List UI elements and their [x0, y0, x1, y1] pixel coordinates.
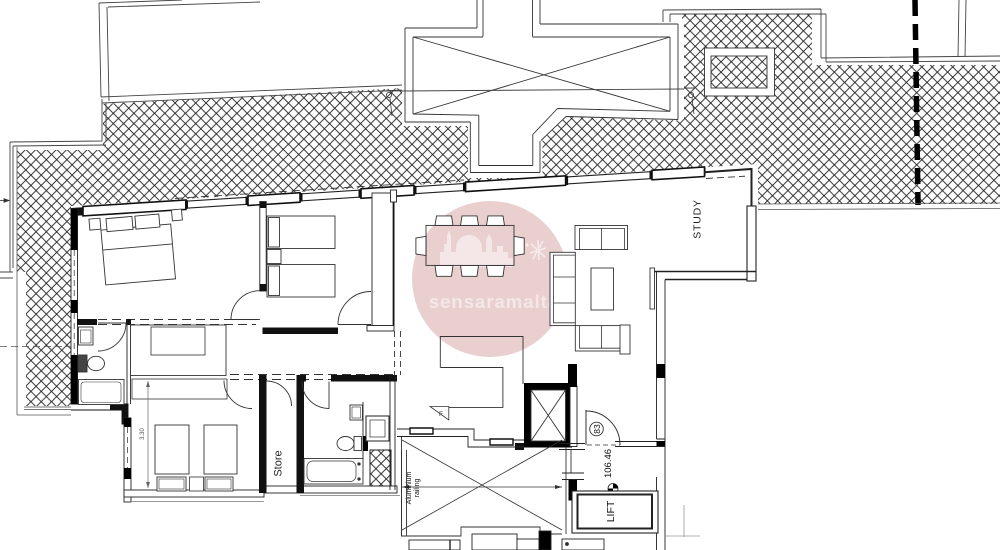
- svg-text:sensaramalta: sensaramalta: [429, 291, 559, 312]
- svg-text:Store: Store: [273, 450, 285, 476]
- svg-text:railing: railing: [414, 479, 421, 498]
- svg-text:STUDY: STUDY: [692, 199, 704, 239]
- svg-text:83: 83: [592, 424, 602, 434]
- svg-text:LIFT: LIFT: [605, 500, 617, 522]
- svg-text:106.46: 106.46: [603, 449, 614, 478]
- svg-text:F: F: [439, 411, 443, 418]
- svg-text:3.30: 3.30: [140, 428, 146, 440]
- svg-text:Aluminium: Aluminium: [406, 471, 413, 504]
